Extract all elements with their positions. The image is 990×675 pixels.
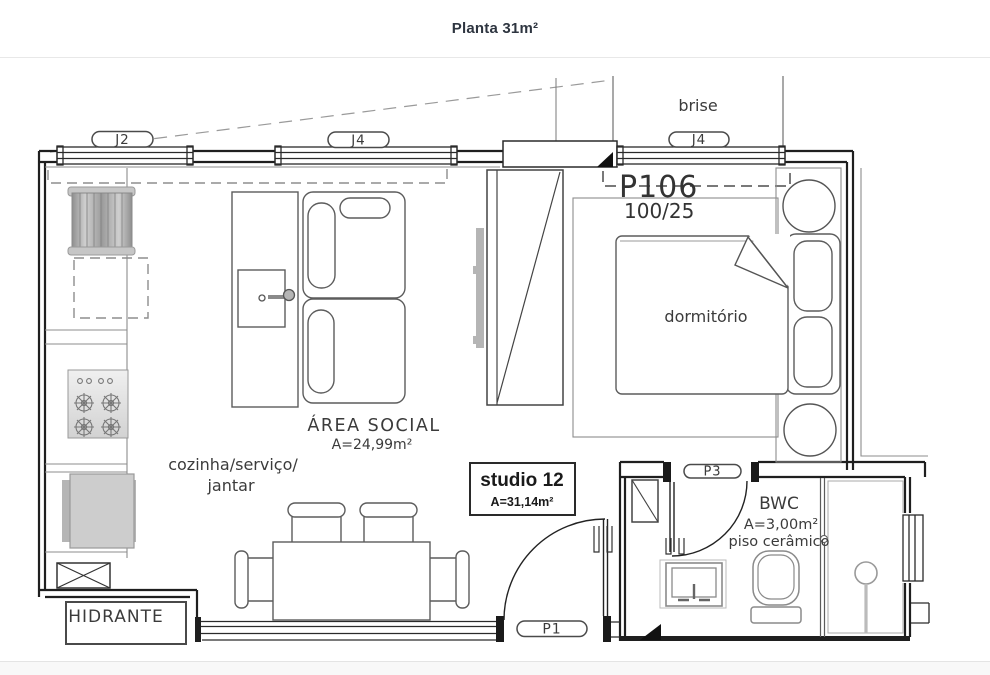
pillow-bottom	[794, 317, 832, 387]
window-label-j2: J2	[114, 132, 130, 148]
floorplan-page: Planta 31m²	[0, 0, 990, 675]
shower	[821, 478, 904, 637]
door-label-p3: P3	[703, 465, 721, 480]
tv-panel	[473, 228, 484, 348]
area-social-label: ÁREA SOCIAL	[307, 414, 440, 436]
floorplan-drawing: HIDRANTE	[0, 0, 990, 675]
pillow-top	[794, 241, 832, 311]
nightstand-bottom	[784, 404, 836, 456]
toilet	[751, 551, 801, 623]
cooktop	[68, 370, 128, 438]
window-bottom	[195, 617, 500, 642]
door-label-p1: P1	[542, 622, 561, 638]
window-j4-right	[617, 146, 785, 166]
dining-table	[273, 542, 430, 620]
bwc-area: A=3,00m²	[744, 517, 818, 533]
vanity-sink	[660, 560, 726, 608]
studio-info-box: studio 12 A=31,14m²	[470, 463, 575, 515]
sideboard	[232, 192, 298, 407]
brise-label: brise	[678, 96, 717, 115]
dining-set	[235, 503, 469, 620]
kitchen-label-line1: cozinha/serviço/	[168, 455, 298, 474]
window-j4-left	[275, 146, 457, 166]
kitchen-label-line2: jantar	[206, 476, 254, 495]
window-label-j4-right: J4	[691, 132, 707, 148]
wardrobe	[487, 170, 563, 405]
refrigerator	[68, 187, 135, 255]
washer	[62, 474, 136, 548]
sofa	[303, 192, 405, 403]
shower-head	[855, 562, 877, 584]
window-label-j4-left: J4	[350, 133, 366, 149]
unit-size: 100/25	[624, 199, 694, 223]
bath-window	[901, 513, 927, 583]
duct-shaft	[57, 563, 110, 588]
bwc-label: BWC	[759, 494, 799, 514]
area-social-area: A=24,99m²	[332, 437, 413, 453]
studio-area: A=31,14m²	[491, 495, 554, 509]
bottom-strip	[0, 661, 990, 675]
hidrante-box: HIDRANTE	[66, 602, 186, 644]
section-markers	[597, 152, 661, 640]
nightstand-top	[783, 180, 835, 232]
dormitorio-label: dormitório	[664, 307, 747, 326]
studio-name: studio 12	[480, 470, 563, 491]
bwc-floor: piso cerâmico	[728, 534, 829, 550]
window-j2	[57, 146, 193, 166]
bath-shaft	[632, 480, 658, 522]
hidrante-label: HIDRANTE	[68, 607, 163, 627]
